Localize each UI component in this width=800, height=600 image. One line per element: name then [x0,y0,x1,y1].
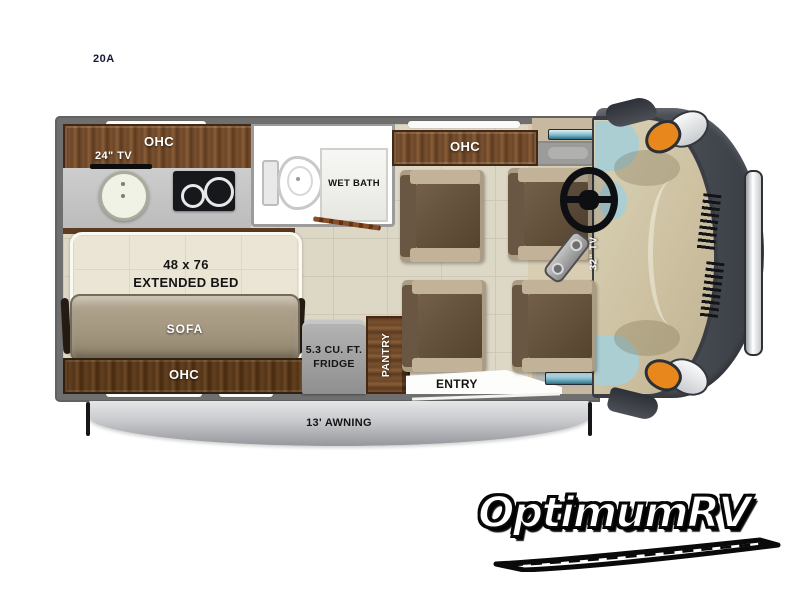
cab-door-window-bottom [545,372,599,385]
wet-bath-room: WET BATH [251,124,395,227]
road-graphic [490,536,782,572]
sofa: SOFA [70,294,300,362]
rv-floorplan-image: 20A OHC 24" TV 48 x 76 EXTENDED BED SOFA [0,0,800,600]
captain-chair [400,170,484,262]
ohc-label: OHC [394,139,536,154]
fridge: 5.3 CU. FT. FRIDGE [302,320,366,394]
console-tray [548,147,588,159]
overhead-cabinet-rear: OHC [63,358,305,394]
entry-label: ENTRY [436,377,478,391]
awning: 13' AWNING [88,401,590,446]
chrome-bumper [744,170,763,356]
toilet [277,156,323,210]
cab-door-window-top [548,129,594,140]
bed-type-label: EXTENDED BED [73,275,299,290]
dealer-logo-text: OptimumRV [478,488,749,538]
tv-24 [90,164,152,169]
bed-dims-label: 48 x 76 [73,257,299,272]
passenger-seat [512,280,596,372]
floorplan-model-label: 20A [93,53,115,65]
kitchen-sink [99,171,149,221]
tv-32-label: 32" TV [589,226,600,282]
ohc-label: OHC [65,367,303,382]
ohc-label: OHC [65,134,253,149]
awning-label: 13' AWNING [88,417,590,429]
overhead-cabinet-front-right: OHC [392,130,538,166]
cooktop [173,171,235,211]
dealer-logo: OptimumRV [472,488,798,572]
hood-highlight [648,180,697,326]
tv-24-label: 24" TV [95,150,132,162]
dashboard-console [534,141,596,166]
shower-pan: WET BATH [320,148,388,222]
sofa-label: SOFA [72,322,298,336]
steering-wheel [560,167,618,233]
wet-bath-label: WET BATH [322,178,386,189]
window-front-right [408,121,520,128]
captain-chair [402,280,486,372]
pantry-label: PANTRY [380,321,392,389]
fridge-label: FRIDGE [302,358,366,370]
fridge-size-label: 5.3 CU. FT. [302,344,366,356]
